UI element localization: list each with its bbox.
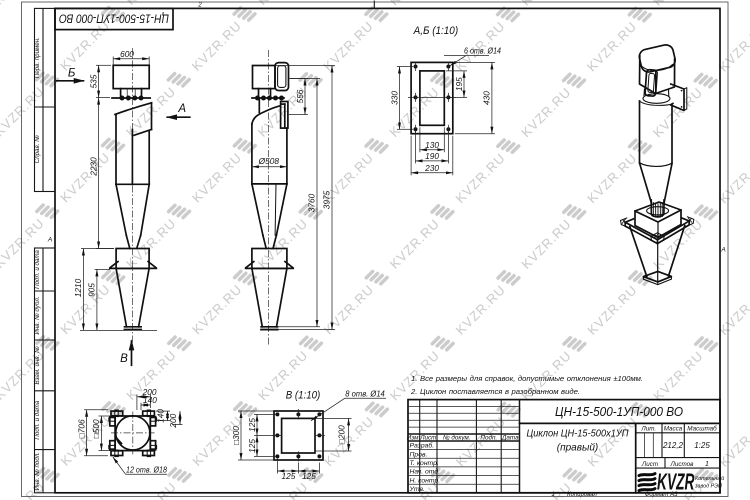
svg-text:430: 430 <box>482 91 492 105</box>
svg-text:330: 330 <box>389 91 399 105</box>
svg-text:Лит.: Лит. <box>640 426 656 433</box>
svg-text:Б: Б <box>68 67 76 79</box>
svg-text:535: 535 <box>88 74 98 88</box>
svg-text:600: 600 <box>120 49 134 59</box>
svg-text:130: 130 <box>425 140 439 150</box>
svg-text:А: А <box>47 237 52 244</box>
svg-text:Т. контр.: Т. контр. <box>410 460 439 467</box>
svg-text:Подп.: Подп. <box>480 434 497 442</box>
svg-text:Циклон ЦН-15-500х1УП: Циклон ЦН-15-500х1УП <box>527 429 630 440</box>
svg-text:905: 905 <box>87 283 97 297</box>
svg-text:3760: 3760 <box>306 193 316 212</box>
svg-text:1. Все размеры для справок, до: 1. Все размеры для справок, допустимые о… <box>411 374 643 383</box>
svg-text:Масса: Масса <box>664 426 683 433</box>
svg-text:125: 125 <box>302 471 316 481</box>
svg-text:Дата: Дата <box>501 435 519 442</box>
svg-text:Пров.: Пров. <box>410 451 428 458</box>
svg-text:Нач. отд.: Нач. отд. <box>410 468 441 476</box>
svg-text:Листов: Листов <box>670 461 695 468</box>
svg-text:□200: □200 <box>337 425 347 444</box>
svg-text:3975: 3975 <box>321 190 331 209</box>
svg-text:ЦН-15-500-1УП-000 ВО: ЦН-15-500-1УП-000 ВО <box>59 11 169 25</box>
svg-text:2: 2 <box>197 3 202 9</box>
svg-text:140: 140 <box>143 395 157 405</box>
svg-text:Подп. и дата: Подп. и дата <box>34 250 41 289</box>
svg-text:125: 125 <box>281 471 295 481</box>
svg-text:556: 556 <box>295 89 305 103</box>
svg-text:12 отв. Ø18: 12 отв. Ø18 <box>126 465 167 475</box>
svg-text:Инв. № подл.: Инв. № подл. <box>34 452 41 490</box>
svg-text:1210: 1210 <box>73 278 83 297</box>
svg-text:□300: □300 <box>231 426 241 445</box>
svg-text:230: 230 <box>424 163 439 173</box>
svg-text:В: В <box>120 353 128 365</box>
svg-text:□500: □500 <box>91 419 101 438</box>
svg-text:завод РЭП: завод РЭП <box>694 483 722 489</box>
svg-text:8 отв. Ø14: 8 отв. Ø14 <box>345 388 385 398</box>
svg-text:Справ. №: Справ. № <box>34 135 41 163</box>
svg-text:Взам. инв. №: Взам. инв. № <box>34 346 41 385</box>
svg-text:Ø508: Ø508 <box>258 156 280 166</box>
svg-text:В (1:10): В (1:10) <box>286 389 321 401</box>
svg-text:Н. контр.: Н. контр. <box>410 477 441 484</box>
svg-text:2230: 2230 <box>88 157 98 177</box>
svg-text:Изм.: Изм. <box>407 435 420 442</box>
svg-text:190: 190 <box>425 151 439 161</box>
svg-text:Разраб.: Разраб. <box>410 442 435 450</box>
svg-text:125: 125 <box>247 418 257 432</box>
svg-text:(правый): (правый) <box>557 443 598 454</box>
svg-text:125: 125 <box>247 439 257 453</box>
svg-text:200: 200 <box>168 413 178 428</box>
svg-text:ЦН-15-500-1УП-000 ВО: ЦН-15-500-1УП-000 ВО <box>555 405 683 419</box>
svg-text:А,Б (1:10): А,Б (1:10) <box>413 25 459 37</box>
svg-text:Инв. № дубл.: Инв. № дубл. <box>34 296 41 334</box>
svg-text:Перв. примен.: Перв. примен. <box>34 37 41 78</box>
svg-text:Лист: Лист <box>641 461 658 468</box>
svg-text:□706: □706 <box>76 419 86 438</box>
svg-text:Утв.: Утв. <box>409 486 426 493</box>
svg-text:2. Циклон поставляется в разоб: 2. Циклон поставляется в разобранном вид… <box>410 387 580 396</box>
svg-text:Масштаб: Масштаб <box>687 425 717 433</box>
svg-text:1: 1 <box>705 461 709 468</box>
svg-text:№ докум.: № докум. <box>443 434 471 442</box>
svg-text:212,2: 212,2 <box>662 441 684 450</box>
svg-text:Подп. и дата: Подп. и дата <box>34 400 41 439</box>
svg-text:А: А <box>177 103 186 115</box>
svg-text:140: 140 <box>156 409 166 423</box>
svg-text:Котельный: Котельный <box>695 475 724 482</box>
svg-text:Лист: Лист <box>419 435 436 442</box>
svg-text:195: 195 <box>454 77 464 91</box>
svg-text:6 отв. Ø14: 6 отв. Ø14 <box>464 46 501 56</box>
svg-text:1:25: 1:25 <box>694 441 710 450</box>
svg-text:KVZR: KVZR <box>657 469 695 495</box>
svg-text:А: А <box>720 247 725 254</box>
